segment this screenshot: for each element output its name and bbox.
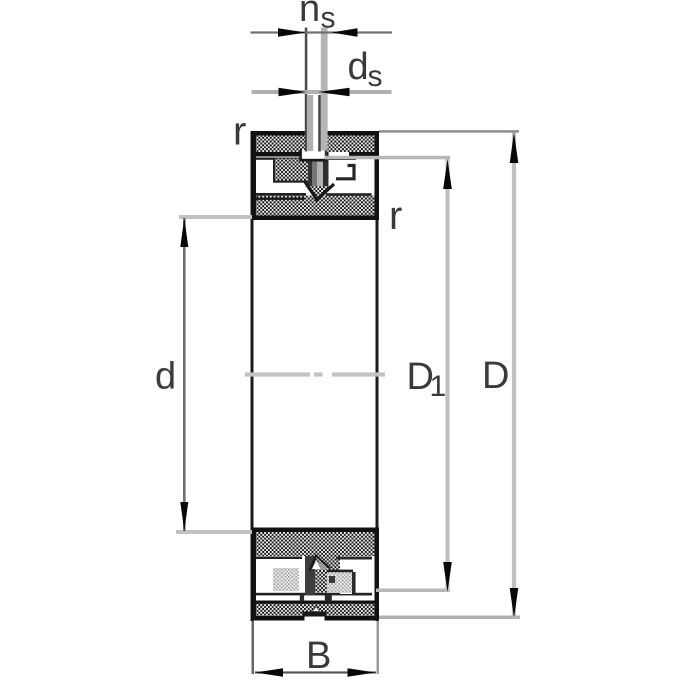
- svg-text:d: d: [348, 46, 369, 88]
- svg-text:s: s: [321, 2, 336, 35]
- svg-text:B: B: [306, 635, 331, 677]
- svg-text:n: n: [299, 0, 320, 30]
- svg-text:s: s: [368, 60, 383, 93]
- svg-text:d: d: [155, 356, 176, 398]
- svg-text:D: D: [482, 355, 509, 397]
- svg-text:1: 1: [430, 370, 447, 403]
- svg-text:r: r: [389, 194, 402, 238]
- svg-text:r: r: [233, 110, 246, 154]
